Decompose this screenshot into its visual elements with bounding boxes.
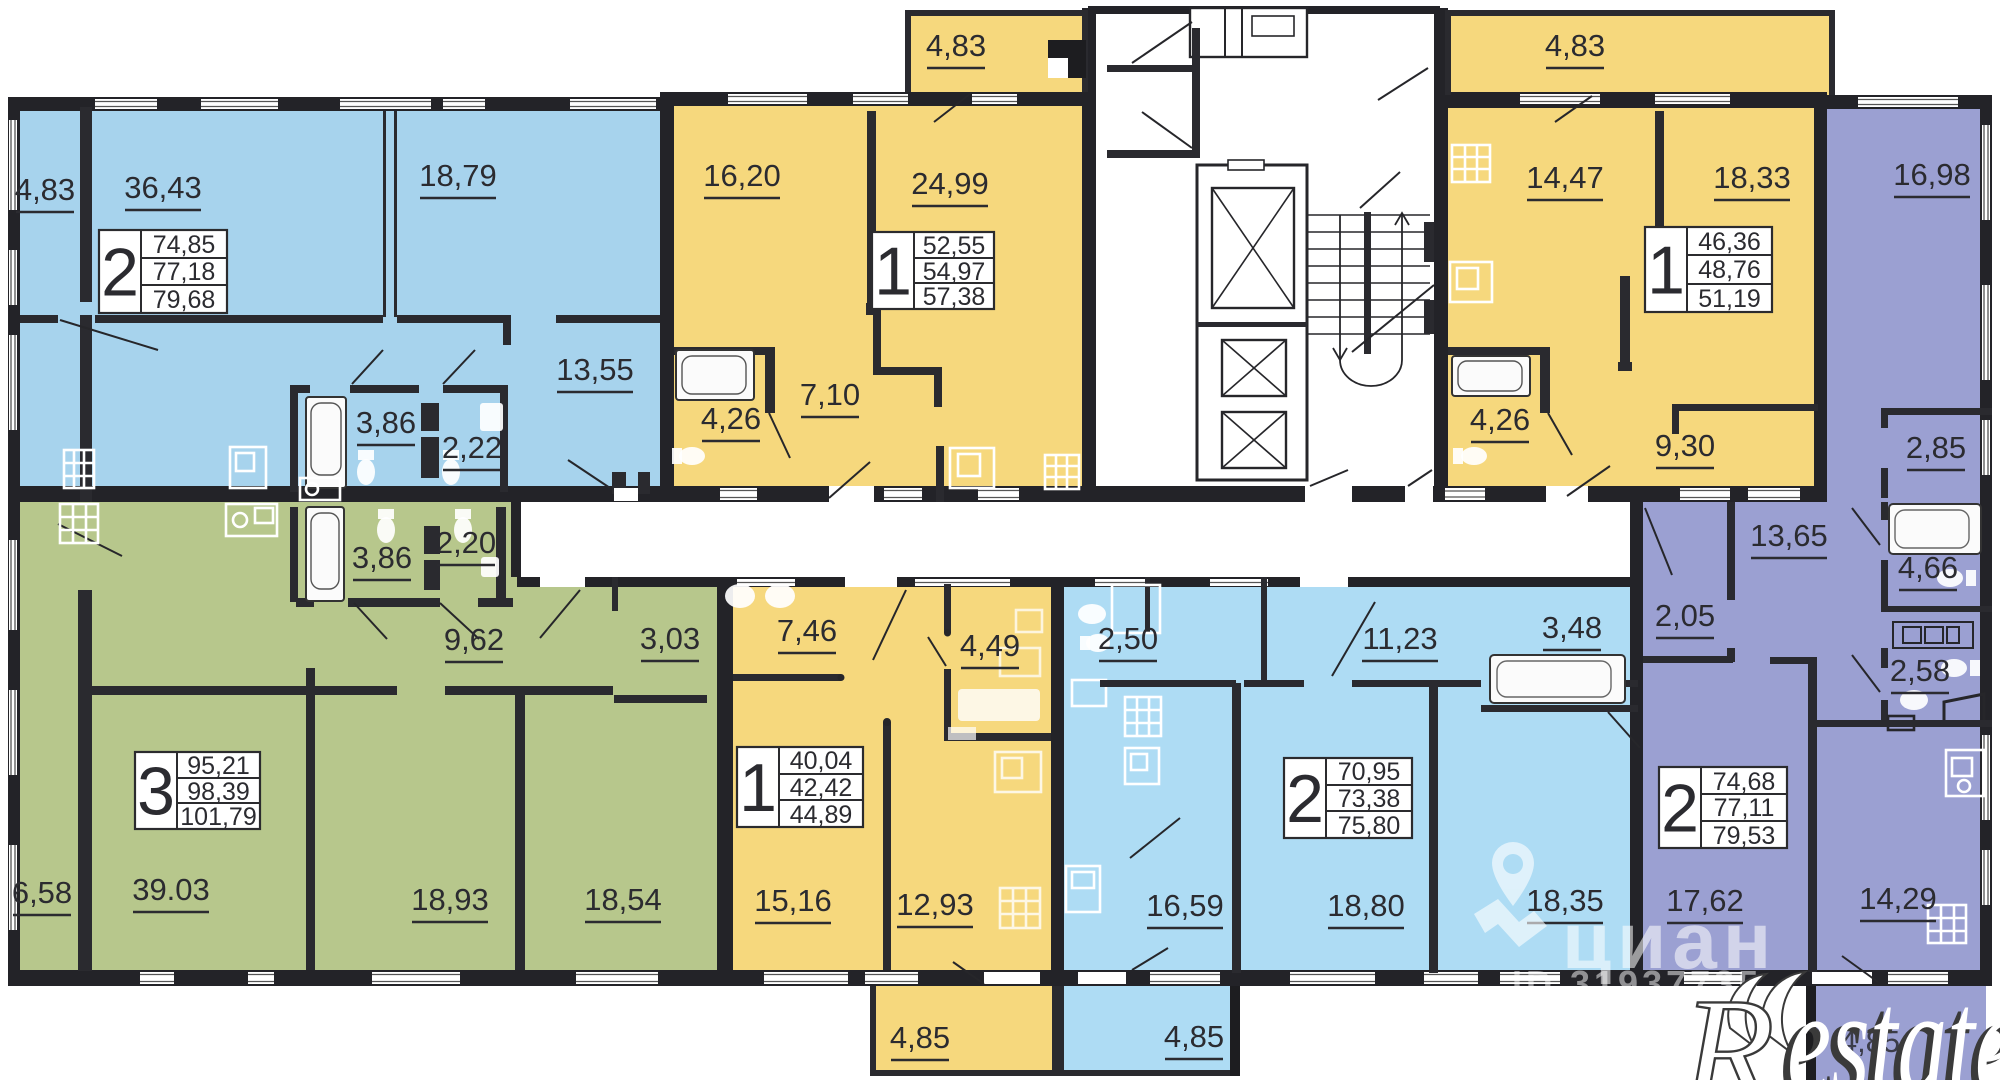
svg-text:estate: estate <box>1787 959 2000 1080</box>
svg-text:2,05: 2,05 <box>1655 598 1715 633</box>
svg-text:18,54: 18,54 <box>584 882 662 917</box>
svg-text:3,86: 3,86 <box>352 540 412 575</box>
svg-text:7,46: 7,46 <box>777 613 837 648</box>
svg-text:75,80: 75,80 <box>1338 812 1401 840</box>
svg-text:3,86: 3,86 <box>356 405 416 440</box>
svg-text:101,79: 101,79 <box>180 803 256 831</box>
svg-text:18,33: 18,33 <box>1713 160 1791 195</box>
svg-text:52,55: 52,55 <box>923 232 986 260</box>
svg-text:24,99: 24,99 <box>911 166 989 201</box>
svg-text:13,55: 13,55 <box>556 352 634 387</box>
svg-text:44,89: 44,89 <box>790 801 853 829</box>
svg-text:4,85: 4,85 <box>1164 1019 1224 1054</box>
svg-text:R: R <box>1681 967 1775 1080</box>
svg-text:2: 2 <box>101 235 139 311</box>
svg-text:2,58: 2,58 <box>1890 653 1950 688</box>
svg-text:46,36: 46,36 <box>1698 228 1761 256</box>
svg-text:18,93: 18,93 <box>411 882 489 917</box>
svg-text:74,85: 74,85 <box>153 231 216 259</box>
svg-text:3: 3 <box>137 754 175 830</box>
svg-text:18,80: 18,80 <box>1327 888 1405 923</box>
svg-text:7,10: 7,10 <box>800 377 860 412</box>
svg-text:73,38: 73,38 <box>1338 785 1401 813</box>
svg-text:1: 1 <box>1647 233 1685 309</box>
svg-text:16,59: 16,59 <box>1146 888 1224 923</box>
svg-text:74,68: 74,68 <box>1713 768 1776 796</box>
svg-text:18,79: 18,79 <box>419 158 497 193</box>
svg-text:4,83: 4,83 <box>926 28 986 63</box>
svg-text:4,26: 4,26 <box>701 401 761 436</box>
svg-text:79,53: 79,53 <box>1713 822 1776 850</box>
svg-text:54,97: 54,97 <box>923 258 986 286</box>
svg-text:2,50: 2,50 <box>1098 621 1158 656</box>
svg-text:1: 1 <box>874 234 912 310</box>
svg-text:14,29: 14,29 <box>1859 881 1937 916</box>
svg-text:2: 2 <box>1286 761 1324 837</box>
svg-text:14,47: 14,47 <box>1526 160 1604 195</box>
svg-text:4,26: 4,26 <box>1470 402 1530 437</box>
svg-text:79,68: 79,68 <box>153 286 216 314</box>
svg-text:2,22: 2,22 <box>442 430 502 465</box>
svg-text:4,49: 4,49 <box>960 628 1020 663</box>
svg-text:42,42: 42,42 <box>790 774 853 802</box>
svg-text:2,20: 2,20 <box>436 525 496 560</box>
svg-text:4,83: 4,83 <box>1545 28 1605 63</box>
svg-text:6,58: 6,58 <box>12 875 72 910</box>
svg-text:16,98: 16,98 <box>1893 157 1971 192</box>
svg-text:39.03: 39.03 <box>132 872 210 907</box>
svg-text:57,38: 57,38 <box>923 283 986 311</box>
svg-text:13,65: 13,65 <box>1750 518 1828 553</box>
svg-text:36,43: 36,43 <box>124 170 202 205</box>
svg-text:77,18: 77,18 <box>153 258 216 286</box>
svg-text:15,16: 15,16 <box>754 883 832 918</box>
svg-text:3,03: 3,03 <box>640 621 700 656</box>
svg-text:95,21: 95,21 <box>187 752 250 780</box>
svg-text:4,66: 4,66 <box>1898 550 1958 585</box>
svg-text:77,11: 77,11 <box>1714 794 1775 822</box>
svg-text:4,83: 4,83 <box>15 172 75 207</box>
svg-text:40,04: 40,04 <box>790 747 853 775</box>
svg-text:1: 1 <box>739 750 777 826</box>
svg-text:70,95: 70,95 <box>1338 758 1401 786</box>
svg-text:4,85: 4,85 <box>890 1020 950 1055</box>
svg-text:48,76: 48,76 <box>1698 256 1761 284</box>
svg-text:11,23: 11,23 <box>1362 621 1437 656</box>
svg-text:3,48: 3,48 <box>1542 610 1602 645</box>
svg-text:9,62: 9,62 <box>444 622 504 657</box>
svg-text:2: 2 <box>1661 771 1699 847</box>
svg-text:16,20: 16,20 <box>703 158 781 193</box>
svg-text:12,93: 12,93 <box>896 887 974 922</box>
svg-text:2,85: 2,85 <box>1906 430 1966 465</box>
svg-text:9,30: 9,30 <box>1655 428 1715 463</box>
svg-text:51,19: 51,19 <box>1698 285 1761 313</box>
svg-text:98,39: 98,39 <box>187 778 250 806</box>
